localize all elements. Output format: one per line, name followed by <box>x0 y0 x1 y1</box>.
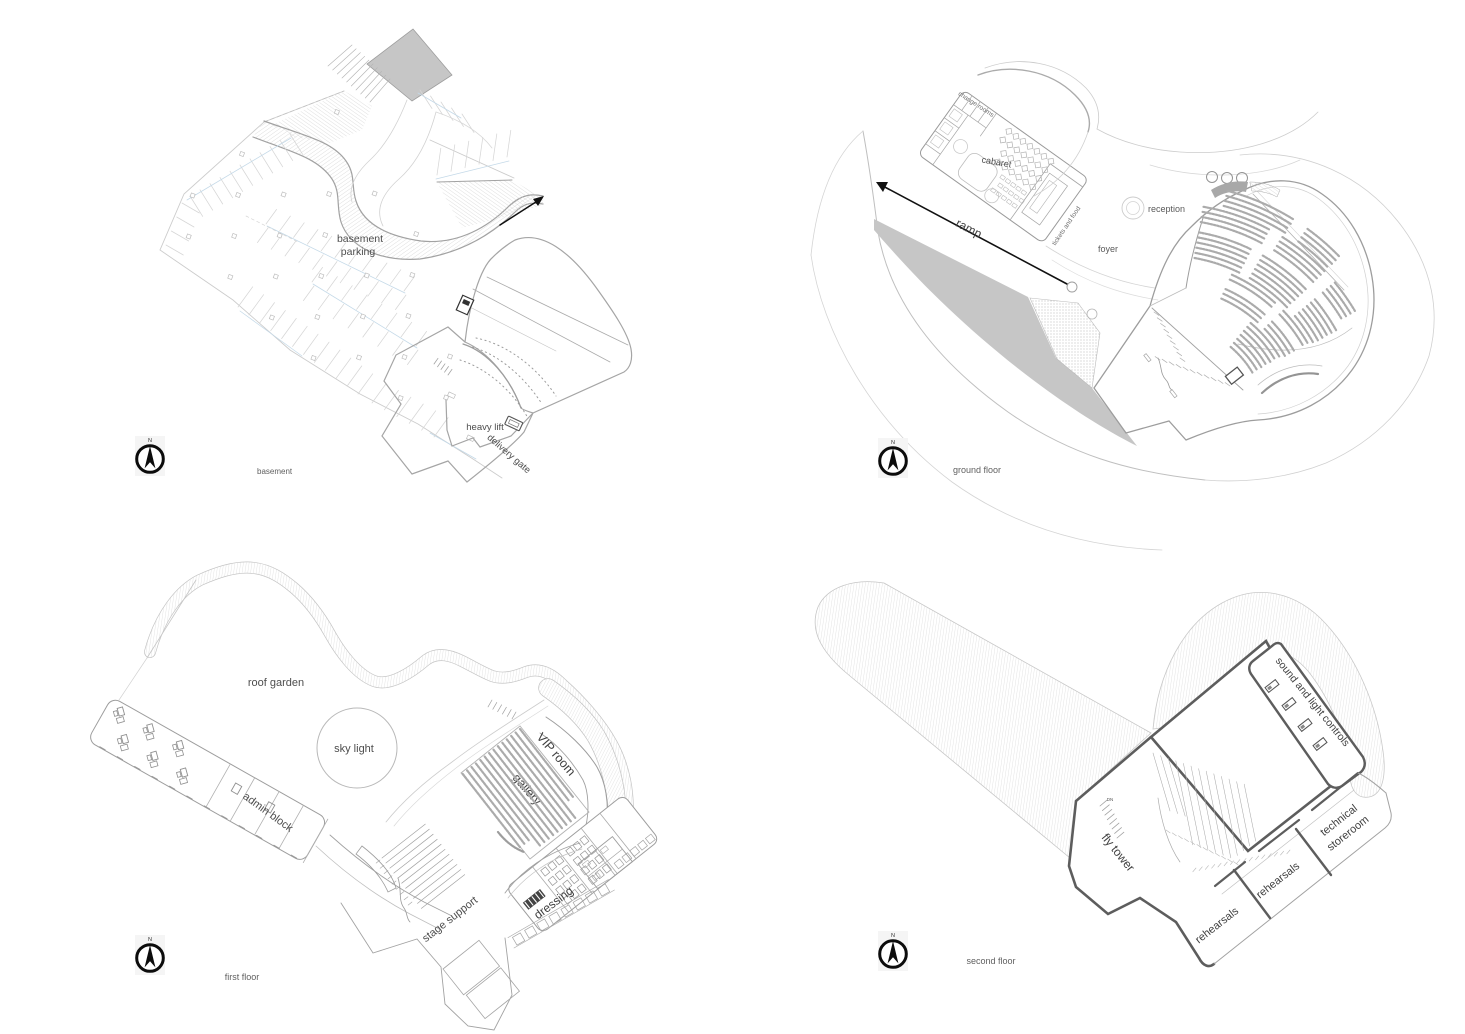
svg-text:basement: basement <box>257 467 293 476</box>
svg-text:N: N <box>148 937 152 943</box>
svg-text:DN: DN <box>1107 797 1114 802</box>
svg-text:sky light: sky light <box>334 743 374 755</box>
svg-text:first floor: first floor <box>225 972 260 982</box>
svg-text:heavy lift: heavy lift <box>466 422 504 433</box>
svg-text:N: N <box>148 438 152 444</box>
svg-text:basement: basement <box>337 233 383 245</box>
svg-text:parking: parking <box>341 246 376 258</box>
svg-text:reception: reception <box>1148 204 1185 214</box>
svg-text:N: N <box>891 440 895 446</box>
svg-text:foyer: foyer <box>1098 244 1118 254</box>
svg-text:N: N <box>891 933 895 939</box>
svg-text:roof garden: roof garden <box>248 677 304 689</box>
svg-text:second floor: second floor <box>966 956 1015 966</box>
svg-text:ground floor: ground floor <box>953 465 1001 475</box>
